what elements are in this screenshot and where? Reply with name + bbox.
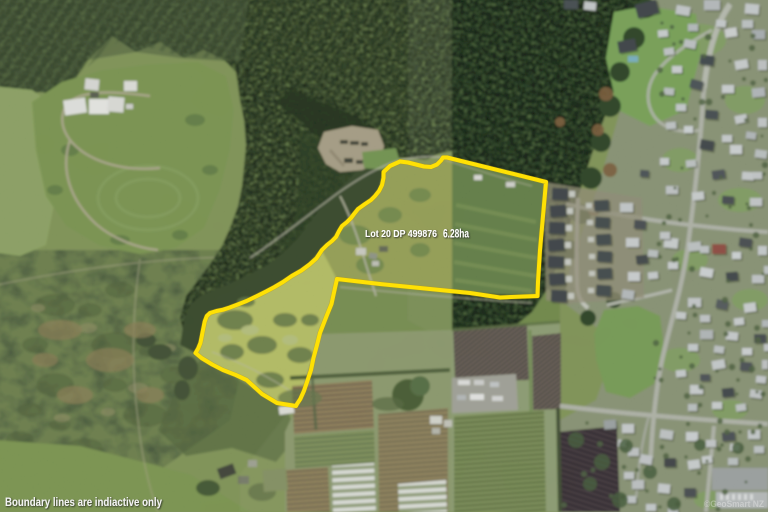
- svg-text:Lot 20 DP 499876: Lot 20 DP 499876: [365, 228, 437, 240]
- svg-text:6.28ha: 6.28ha: [443, 229, 469, 241]
- svg-text:Boundary lines are indiactive: Boundary lines are indiactive only: [5, 497, 162, 509]
- svg-text:©GeoSmart NZ: ©GeoSmart NZ: [704, 499, 764, 510]
